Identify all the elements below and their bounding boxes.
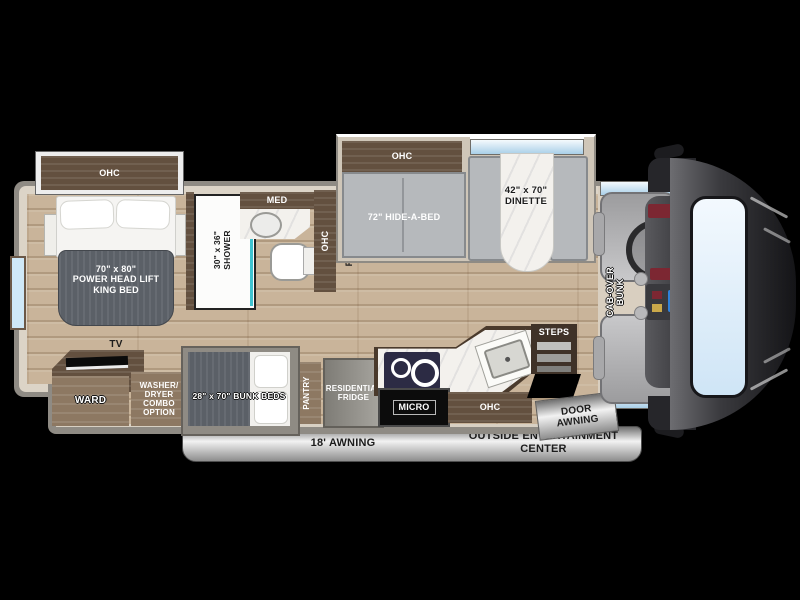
dinette-bench-right (550, 156, 588, 261)
med-label: MED (267, 195, 288, 205)
bedroom-tv-label: TV (96, 339, 136, 351)
cooktop (384, 352, 440, 390)
microwave: MICRO (378, 388, 450, 427)
king-bed-label: 70" x 80" POWER HEAD LIFT KING BED (59, 264, 173, 295)
pillow (254, 355, 288, 388)
cup-holder (634, 272, 648, 286)
entry-door-opening (527, 374, 581, 398)
sofa-ohc-label: OHC (392, 151, 413, 161)
washer-dryer-label: WASHER/ DRYER COMBO OPTION (140, 381, 179, 418)
micro-label: MICRO (393, 400, 436, 414)
console-button (652, 304, 662, 312)
windshield (690, 196, 748, 398)
hide-a-bed-sofa: 72" HIDE-A-BED (342, 172, 466, 258)
bedroom-ohc-cabinet: OHC (41, 156, 178, 190)
step-tread (537, 342, 571, 350)
bath-wall (186, 192, 194, 310)
burner-small (391, 358, 411, 378)
burner-large (411, 359, 439, 387)
bedroom-ohc-label: OHC (99, 168, 120, 178)
steps-label: STEPS (531, 327, 577, 337)
pantry-label: PANTRY (297, 363, 317, 423)
fridge-label: RESIDENTIAL FRIDGE (326, 384, 382, 402)
awning-length-label: 18' AWNING (263, 437, 423, 450)
sofa-label: 72" HIDE-A-BED (344, 212, 464, 222)
console-button (652, 291, 662, 299)
wardrobe: WARD (52, 376, 129, 426)
dash-panel (648, 204, 672, 218)
cap-highlight (763, 227, 791, 244)
sofa-ohc-cabinet: OHC (342, 141, 462, 172)
step-tread (537, 354, 571, 362)
bunk-mattress (188, 352, 250, 426)
cup-holder (634, 306, 648, 320)
rear-window (10, 256, 26, 330)
cap-highlight (750, 368, 788, 390)
medicine-cabinet: MED (240, 192, 314, 209)
entry-steps: STEPS (531, 324, 577, 374)
shower-label: 30" x 36" SHOWER (203, 210, 243, 290)
ward-label: WARD (75, 395, 106, 407)
kitchen-ohc-cabinet: OHC (448, 392, 532, 423)
cab-over-bunk-label: CAB-OVER BUNK (595, 252, 635, 332)
driver-armrest (593, 212, 605, 256)
bedroom-ohc-slide: OHC (35, 151, 184, 195)
bunk-beds-label: 28" x 70" BUNK BEDS (178, 392, 300, 402)
cap-highlight (763, 347, 791, 364)
floorplan-diagram: 18' AWNING OUTSIDE ENTERTAINMENT CENTER … (0, 0, 800, 600)
pillow (60, 199, 115, 230)
king-bed-mattress: 70" x 80" POWER HEAD LIFT KING BED (58, 250, 174, 326)
cap-highlight (750, 196, 788, 218)
passenger-armrest (593, 336, 605, 380)
dinette-label: 42" x 70" DINETTE (462, 186, 590, 208)
pillow (116, 199, 171, 230)
door-awning-label: DOOR AWNING (555, 402, 600, 430)
kitchen-ohc-label: OHC (480, 402, 501, 412)
dinette-table (500, 153, 554, 272)
step-tread (537, 366, 571, 372)
bath-sink (250, 212, 282, 238)
tv-screen (66, 356, 128, 370)
